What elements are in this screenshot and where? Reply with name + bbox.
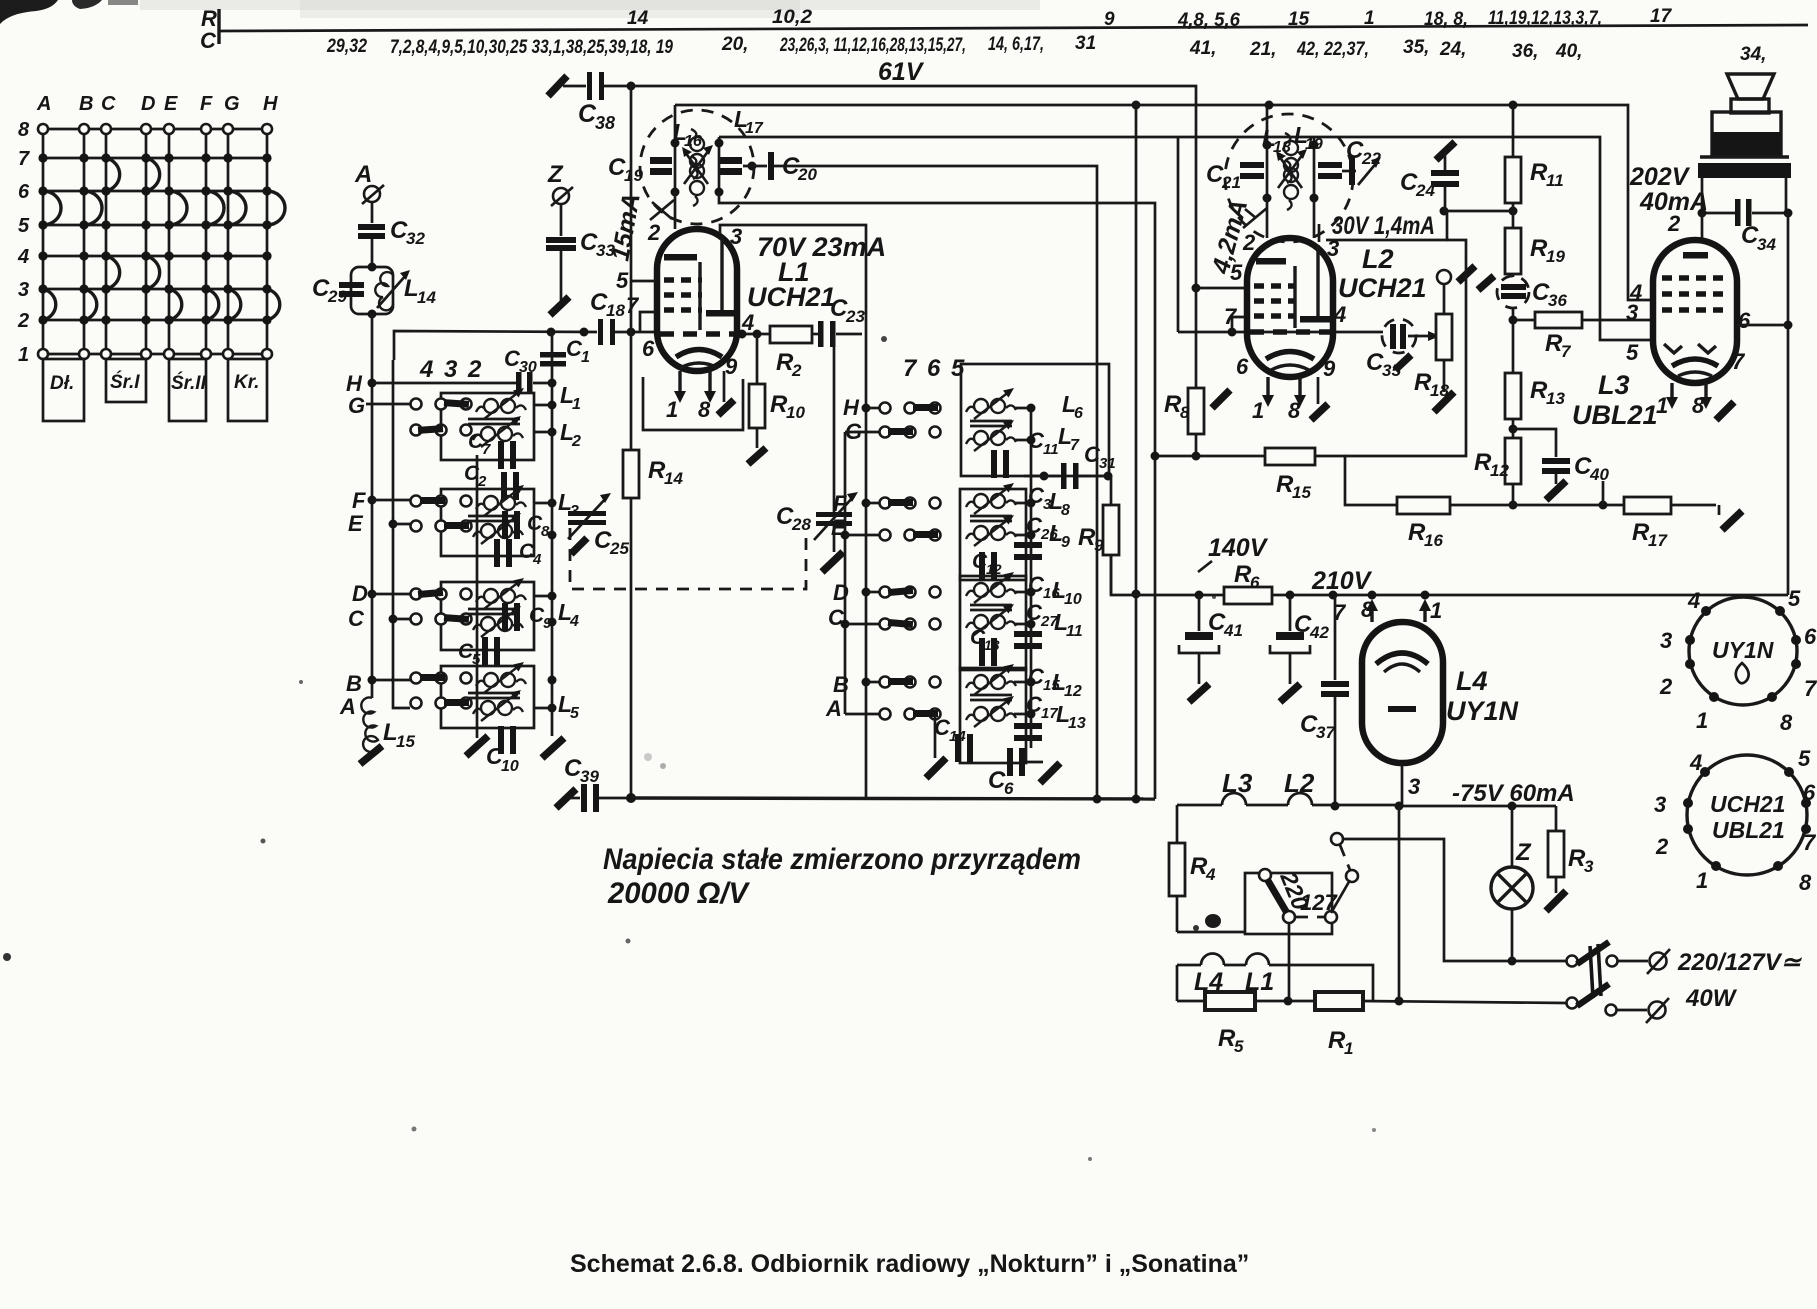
- svg-text:7: 7: [626, 293, 640, 318]
- svg-text:F: F: [352, 488, 366, 513]
- svg-text:UCH21: UCH21: [747, 282, 836, 312]
- svg-text:14: 14: [664, 469, 683, 488]
- svg-text:40: 40: [1589, 465, 1609, 484]
- svg-text:5: 5: [1234, 1037, 1244, 1056]
- svg-text:Napiecia stałe zmierzono przyr: Napiecia stałe zmierzono przyrządem: [603, 843, 1081, 876]
- svg-text:19: 19: [1546, 247, 1565, 266]
- svg-text:21,: 21,: [1249, 39, 1276, 60]
- svg-text:13: 13: [1068, 715, 1086, 732]
- svg-text:5: 5: [1230, 260, 1243, 285]
- svg-text:D: D: [141, 93, 155, 115]
- svg-text:3: 3: [1327, 236, 1339, 261]
- svg-text:14: 14: [417, 288, 436, 307]
- svg-text:4: 4: [1333, 302, 1346, 327]
- svg-text:42: 42: [1309, 623, 1329, 642]
- svg-text:C: C: [101, 93, 116, 115]
- svg-text:7: 7: [1803, 830, 1817, 855]
- svg-text:24: 24: [1415, 181, 1435, 200]
- svg-text:18: 18: [606, 301, 625, 320]
- svg-text:4: 4: [569, 613, 579, 630]
- svg-text:8: 8: [541, 523, 550, 540]
- svg-text:29: 29: [327, 287, 347, 306]
- svg-text:10,2: 10,2: [772, 7, 812, 28]
- svg-text:D: D: [352, 581, 368, 606]
- svg-text:5: 5: [18, 215, 30, 237]
- svg-text:23: 23: [845, 307, 865, 326]
- svg-text:UBL21: UBL21: [1572, 400, 1658, 430]
- svg-text:6: 6: [642, 336, 655, 361]
- svg-text:7: 7: [903, 355, 918, 382]
- svg-text:13: 13: [1546, 389, 1565, 408]
- svg-text:A: A: [354, 161, 372, 188]
- svg-text:30V 1,4mA: 30V 1,4mA: [1332, 212, 1435, 240]
- svg-text:9: 9: [1323, 356, 1336, 381]
- svg-text:2: 2: [477, 473, 487, 490]
- svg-text:2: 2: [1667, 211, 1681, 236]
- svg-text:C: C: [200, 28, 217, 53]
- svg-text:16: 16: [1424, 531, 1443, 550]
- svg-text:3: 3: [1408, 774, 1420, 799]
- svg-text:6: 6: [1738, 308, 1751, 333]
- svg-text:Kr.: Kr.: [234, 372, 259, 393]
- svg-text:1: 1: [18, 344, 29, 366]
- svg-text:2: 2: [1659, 674, 1673, 699]
- svg-text:4: 4: [1689, 750, 1702, 775]
- svg-text:5: 5: [1788, 586, 1801, 611]
- svg-text:19: 19: [624, 166, 643, 185]
- svg-text:2: 2: [791, 361, 802, 380]
- svg-text:Śr.II: Śr.II: [171, 372, 207, 394]
- svg-text:18: 18: [1430, 381, 1449, 400]
- svg-text:7: 7: [1224, 304, 1238, 329]
- svg-text:L4: L4: [1456, 666, 1488, 696]
- svg-text:6: 6: [1250, 573, 1260, 592]
- svg-text:8: 8: [1061, 502, 1070, 519]
- svg-text:H: H: [843, 395, 860, 420]
- svg-text:7: 7: [1804, 676, 1817, 701]
- svg-text:D: D: [833, 580, 849, 605]
- svg-text:1: 1: [666, 397, 678, 422]
- svg-text:17: 17: [745, 120, 764, 137]
- svg-text:3: 3: [1626, 300, 1638, 325]
- svg-text:11: 11: [1066, 623, 1083, 640]
- svg-text:15: 15: [1288, 9, 1310, 30]
- svg-text:16: 16: [684, 133, 702, 150]
- svg-text:7: 7: [482, 441, 491, 458]
- svg-text:5: 5: [951, 355, 965, 382]
- svg-text:E: E: [164, 93, 178, 115]
- svg-text:40W: 40W: [1685, 985, 1738, 1012]
- svg-text:4,8, 5,6: 4,8, 5,6: [1177, 10, 1240, 31]
- svg-text:6: 6: [1236, 354, 1249, 379]
- svg-text:B: B: [79, 93, 93, 115]
- svg-text:70V 23mA: 70V 23mA: [757, 232, 886, 262]
- svg-text:10: 10: [1064, 591, 1082, 608]
- svg-text:38: 38: [595, 113, 615, 133]
- svg-text:1: 1: [1344, 1039, 1353, 1058]
- svg-text:8: 8: [1780, 710, 1793, 735]
- svg-text:14: 14: [949, 728, 966, 745]
- svg-text:11: 11: [1546, 171, 1564, 190]
- svg-text:8: 8: [18, 119, 30, 141]
- svg-text:14: 14: [627, 8, 649, 29]
- svg-text:2: 2: [17, 310, 29, 332]
- svg-text:3: 3: [1584, 857, 1594, 876]
- svg-text:20000 Ω/V: 20000 Ω/V: [607, 877, 751, 910]
- svg-text:4: 4: [419, 356, 433, 383]
- svg-text:8: 8: [1692, 393, 1705, 418]
- svg-text:E: E: [348, 511, 364, 536]
- svg-text:127: 127: [1300, 890, 1338, 915]
- svg-text:2: 2: [467, 356, 482, 383]
- svg-text:11,19,12,13,3,7,: 11,19,12,13,3,7,: [1488, 8, 1602, 29]
- svg-text:G: G: [224, 93, 240, 115]
- svg-text:UBL21: UBL21: [1712, 817, 1785, 843]
- svg-text:9: 9: [543, 615, 552, 632]
- svg-text:8: 8: [1180, 403, 1190, 422]
- svg-text:61V: 61V: [878, 58, 925, 86]
- svg-text:6: 6: [18, 181, 30, 203]
- svg-text:34: 34: [1757, 235, 1776, 254]
- svg-text:7,2,8,4,9,5,10,30,25 33,1,38,2: 7,2,8,4,9,5,10,30,25 33,1,38,25,39,18, 1…: [390, 37, 673, 58]
- svg-text:12: 12: [1064, 683, 1082, 700]
- svg-text:2: 2: [1655, 834, 1669, 859]
- svg-text:1: 1: [1656, 393, 1668, 418]
- svg-text:3: 3: [730, 224, 742, 249]
- svg-text:9: 9: [725, 354, 738, 379]
- svg-text:31: 31: [1075, 33, 1096, 54]
- svg-text:1: 1: [1252, 398, 1264, 423]
- svg-text:5: 5: [570, 705, 580, 722]
- svg-text:2: 2: [571, 433, 581, 450]
- svg-text:Dł.: Dł.: [50, 373, 74, 394]
- svg-text:18: 18: [1273, 139, 1291, 156]
- svg-text:H: H: [263, 93, 278, 115]
- svg-text:35,: 35,: [1403, 37, 1429, 58]
- svg-text:Z: Z: [547, 161, 564, 188]
- svg-text:1: 1: [1430, 598, 1442, 623]
- svg-text:7: 7: [1561, 342, 1572, 361]
- svg-text:41: 41: [1223, 621, 1243, 640]
- svg-text:1: 1: [572, 396, 581, 413]
- svg-text:L3: L3: [1598, 370, 1630, 400]
- svg-text:25: 25: [609, 539, 629, 558]
- svg-text:6: 6: [1004, 779, 1014, 798]
- svg-text:210V: 210V: [1311, 567, 1373, 595]
- svg-text:15: 15: [1292, 483, 1311, 502]
- svg-text:30: 30: [519, 359, 537, 376]
- svg-text:20,: 20,: [721, 34, 748, 55]
- svg-text:10: 10: [501, 758, 519, 775]
- svg-text:A: A: [339, 694, 356, 719]
- svg-text:G: G: [348, 393, 365, 418]
- svg-text:5: 5: [1626, 340, 1639, 365]
- svg-text:220/127V≃: 220/127V≃: [1677, 949, 1803, 976]
- svg-text:202V: 202V: [1629, 163, 1691, 191]
- svg-text:UY1N: UY1N: [1446, 696, 1519, 726]
- svg-text:5: 5: [1798, 746, 1811, 771]
- svg-text:31: 31: [1099, 455, 1116, 472]
- svg-text:29,32: 29,32: [326, 36, 367, 57]
- svg-text:37: 37: [1316, 723, 1336, 742]
- svg-text:1: 1: [1696, 708, 1708, 733]
- svg-text:19: 19: [1305, 136, 1323, 153]
- svg-text:Schemat 2.6.8. Odbiornik radio: Schemat 2.6.8. Odbiornik radiowy „Noktur…: [570, 1250, 1249, 1278]
- svg-text:4: 4: [1205, 865, 1216, 884]
- svg-text:14, 6,17,: 14, 6,17,: [988, 34, 1044, 55]
- svg-text:5: 5: [616, 268, 629, 293]
- svg-text:2: 2: [1242, 230, 1256, 255]
- svg-text:UY1N: UY1N: [1712, 637, 1774, 663]
- svg-text:34,: 34,: [1740, 44, 1766, 65]
- svg-text:18, 8,: 18, 8,: [1424, 9, 1468, 30]
- svg-text:1: 1: [1364, 8, 1375, 29]
- svg-text:C: C: [348, 606, 365, 631]
- svg-text:3: 3: [1660, 628, 1672, 653]
- svg-text:3: 3: [444, 356, 458, 383]
- svg-text:36: 36: [1548, 291, 1567, 310]
- svg-text:15: 15: [396, 732, 415, 751]
- svg-text:12: 12: [1490, 461, 1509, 480]
- svg-text:11: 11: [1043, 441, 1059, 458]
- svg-text:7: 7: [18, 148, 30, 170]
- svg-text:7: 7: [1732, 349, 1746, 374]
- svg-text:40,: 40,: [1555, 41, 1582, 62]
- svg-text:8: 8: [1361, 597, 1374, 622]
- svg-text:Z: Z: [1515, 839, 1532, 866]
- svg-text:6: 6: [1804, 624, 1817, 649]
- svg-text:24,: 24,: [1439, 39, 1466, 60]
- svg-text:A: A: [36, 93, 51, 115]
- svg-text:17: 17: [1648, 531, 1668, 550]
- svg-text:41,: 41,: [1189, 38, 1216, 59]
- svg-text:12: 12: [986, 561, 1002, 577]
- svg-text:B: B: [833, 672, 849, 697]
- svg-text:1: 1: [1696, 868, 1708, 893]
- svg-text:3: 3: [1654, 792, 1666, 817]
- svg-text:4: 4: [532, 551, 542, 568]
- svg-text:17: 17: [1650, 6, 1673, 27]
- svg-text:-75V 60mA: -75V 60mA: [1452, 780, 1575, 807]
- svg-text:20: 20: [797, 165, 817, 184]
- svg-text:Śr.I: Śr.I: [110, 371, 140, 393]
- svg-text:10: 10: [786, 403, 805, 422]
- svg-text:3: 3: [18, 279, 29, 301]
- svg-text:39: 39: [580, 767, 599, 786]
- svg-text:42, 22,37,: 42, 22,37,: [1296, 39, 1369, 60]
- svg-text:UCH21: UCH21: [1338, 273, 1427, 303]
- svg-text:9: 9: [1094, 536, 1104, 555]
- svg-text:1: 1: [581, 349, 590, 366]
- svg-text:4: 4: [1687, 588, 1700, 613]
- svg-text:23,26,3, 11,12,16,28,13,15,27,: 23,26,3, 11,12,16,28,13,15,27,: [779, 35, 966, 56]
- svg-text:A: A: [825, 696, 842, 721]
- svg-text:28: 28: [791, 515, 811, 534]
- svg-text:9: 9: [1061, 534, 1070, 551]
- svg-text:36,: 36,: [1512, 41, 1538, 62]
- svg-text:UCH21: UCH21: [1710, 791, 1785, 817]
- svg-text:B: B: [346, 671, 362, 696]
- svg-text:32: 32: [406, 229, 425, 248]
- svg-text:F: F: [200, 93, 213, 115]
- svg-text:21: 21: [1221, 173, 1241, 192]
- svg-text:6: 6: [927, 355, 941, 382]
- svg-text:140V: 140V: [1208, 534, 1269, 562]
- svg-text:9: 9: [1104, 9, 1115, 30]
- svg-text:6: 6: [1074, 405, 1083, 422]
- svg-text:4: 4: [17, 246, 29, 268]
- svg-text:13: 13: [984, 637, 1000, 653]
- svg-text:6: 6: [1803, 780, 1816, 805]
- svg-text:7: 7: [1070, 437, 1080, 454]
- svg-text:8: 8: [1799, 870, 1812, 895]
- svg-text:2: 2: [647, 220, 661, 245]
- svg-text:22: 22: [1361, 149, 1381, 168]
- svg-text:L2: L2: [1362, 244, 1394, 274]
